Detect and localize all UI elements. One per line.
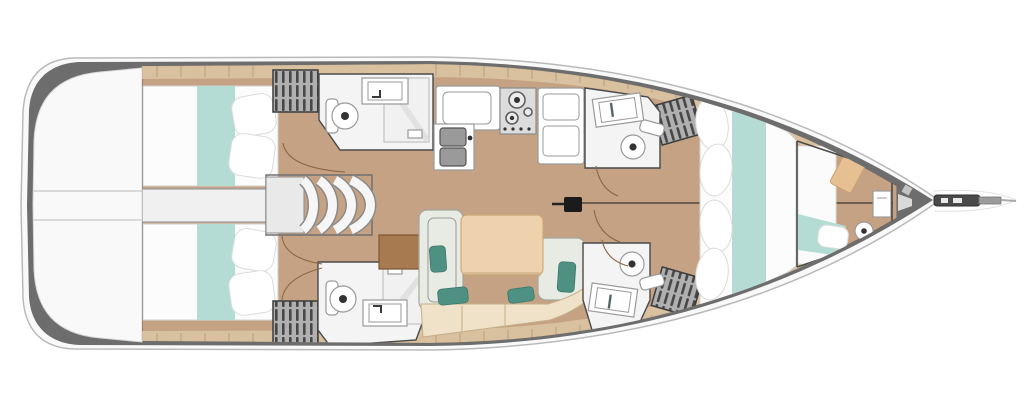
interior <box>142 63 897 347</box>
sink-basin <box>440 148 466 166</box>
pillow <box>817 224 850 250</box>
bowsprit-mark <box>953 198 962 203</box>
accent-cushion <box>429 245 447 272</box>
locker-louvered-aft-port <box>273 70 318 112</box>
pillow <box>227 132 276 180</box>
bowsprit-mark <box>941 198 948 203</box>
toilet-lid-dot <box>628 260 635 267</box>
burner <box>524 108 532 116</box>
stove-knob <box>503 127 506 130</box>
stove-knob <box>511 127 514 130</box>
aft-cabin-starboard <box>143 224 278 320</box>
faucet-icon <box>468 136 473 141</box>
aft-head-starboard <box>318 262 430 346</box>
shower-drain <box>408 130 422 138</box>
mast-base <box>564 197 582 212</box>
toilet-lid-dot <box>341 112 349 120</box>
bowsprit <box>934 190 1016 211</box>
bed-runner <box>197 224 235 320</box>
salon-table <box>461 215 543 275</box>
bed-runner <box>732 106 766 297</box>
bed-runner <box>197 86 235 186</box>
pillow <box>227 269 276 317</box>
chart-table <box>379 235 422 269</box>
aft-head-port <box>319 74 433 150</box>
aft-cabin-port <box>143 86 278 186</box>
accent-cushion <box>437 286 469 305</box>
anchor-roller <box>979 197 1001 204</box>
stove-knob <box>527 127 530 130</box>
pillow <box>230 227 278 274</box>
locker-louvered-aft-starboard <box>273 301 318 344</box>
pillow <box>230 92 278 139</box>
engine-compartment <box>142 189 278 222</box>
sink-basin <box>440 128 466 146</box>
floor-plan-canvas <box>0 0 1024 411</box>
companionway-steps <box>266 175 372 235</box>
companionway-landing <box>266 177 304 233</box>
table-shadow <box>463 272 541 277</box>
toilet-lid-dot <box>339 295 347 303</box>
toilet-lid-dot <box>629 143 636 150</box>
burner-center <box>510 116 514 120</box>
forestay-fitting <box>1001 200 1016 201</box>
sink <box>873 191 891 217</box>
stove-knob <box>519 127 522 130</box>
swim-platform <box>33 68 142 342</box>
toilet-lid-dot <box>861 228 867 234</box>
burner-center <box>514 97 520 103</box>
accent-cushion <box>557 261 576 292</box>
yacht-floor-plan <box>0 0 1024 411</box>
